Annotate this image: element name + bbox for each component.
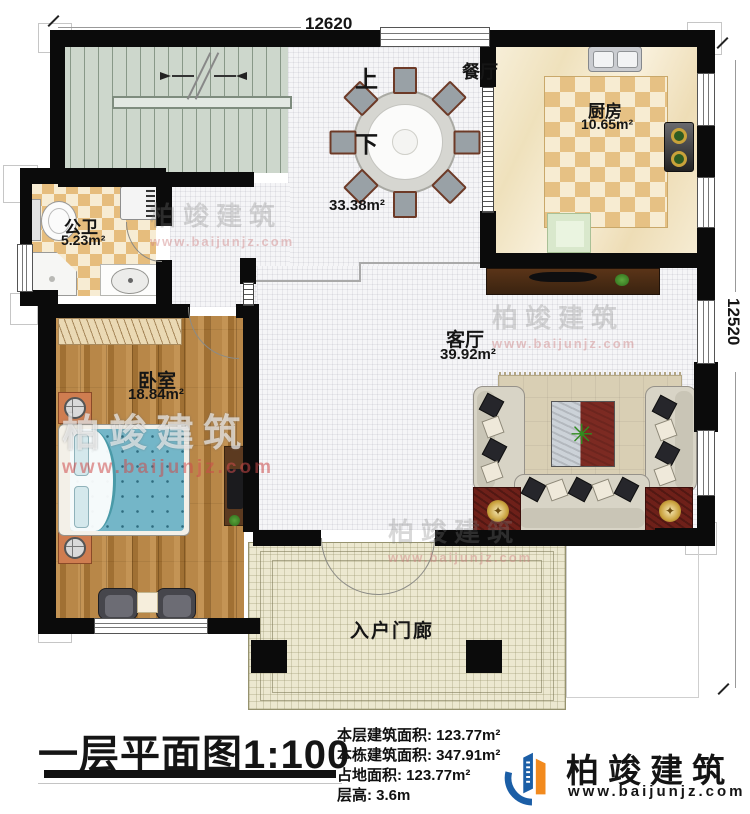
bedroom-chair xyxy=(98,588,138,620)
stair-arrow-line xyxy=(172,75,194,77)
room-area-bathroom: 5.23m² xyxy=(61,232,105,248)
kitchen-sink xyxy=(588,46,642,72)
title-underline-thin xyxy=(38,783,342,784)
kitchen-stove xyxy=(664,122,694,172)
doorway-threshold xyxy=(243,282,254,306)
dining-chair xyxy=(330,131,357,155)
beam-line xyxy=(359,262,361,282)
wall-segment xyxy=(480,253,698,268)
wall-segment xyxy=(253,530,321,546)
wall-segment xyxy=(697,30,715,75)
room-area-kitchen: 10.65m² xyxy=(581,116,633,132)
wall-segment xyxy=(694,362,718,432)
coffee-table: ✳ xyxy=(551,401,615,467)
dining-chair xyxy=(454,131,481,155)
window xyxy=(17,244,33,292)
window xyxy=(94,618,208,634)
dining-chair xyxy=(393,67,417,94)
info-floor-area: 本层建筑面积: 123.77m² xyxy=(337,726,500,746)
bathroom-counter xyxy=(100,264,158,296)
dimension-line-right xyxy=(735,372,736,688)
wall-segment xyxy=(38,304,190,318)
kitchen-sliding-door xyxy=(482,87,494,213)
stairs-down-label: 下 xyxy=(355,125,378,159)
terrace-outline xyxy=(566,545,699,698)
wall-segment xyxy=(156,260,172,306)
medallion-icon: ✦ xyxy=(665,504,675,518)
beam-line xyxy=(256,280,361,282)
build-info: 本层建筑面积: 123.77m² 本栋建筑面积: 347.91m² 占地面积: … xyxy=(337,726,500,806)
window xyxy=(697,300,715,364)
dimension-tick xyxy=(717,683,729,695)
brand-logo-icon xyxy=(502,746,560,806)
stair-arrow-icon xyxy=(236,72,247,80)
tv-cabinet xyxy=(486,268,660,295)
info-building-area: 本栋建筑面积: 347.91m² xyxy=(337,746,500,766)
dimension-right: 12520 xyxy=(723,298,743,345)
room-label-dining: 餐厅 xyxy=(462,58,498,84)
window xyxy=(380,27,490,47)
porch-column xyxy=(251,640,287,673)
wall-segment xyxy=(50,30,65,177)
stair-arrow-icon xyxy=(160,72,171,80)
kitchen-cabinet xyxy=(547,213,591,253)
wall-segment xyxy=(697,226,715,302)
plant-icon: ✳ xyxy=(570,418,593,451)
wardrobe xyxy=(58,318,182,345)
dimension-top: 12620 xyxy=(305,14,352,34)
info-floor-height: 层高: 3.6m xyxy=(337,786,500,806)
watermark: 柏竣建筑www.baijunjz.com xyxy=(492,298,636,351)
bedroom-chair xyxy=(156,588,196,620)
side-table: ✦ xyxy=(645,487,693,533)
window xyxy=(697,177,715,228)
stair-arrow-line xyxy=(214,75,236,77)
wall-segment xyxy=(697,494,715,546)
wall-segment xyxy=(488,30,700,47)
bedroom-side-table xyxy=(137,592,158,613)
bed-pillow xyxy=(74,486,89,528)
wall-segment xyxy=(20,168,166,184)
info-land-area: 占地面积: 123.77m² xyxy=(337,766,500,786)
brand-logo: 柏竣建筑 www.baijunjz.com xyxy=(502,746,732,808)
watermark: 柏竣建筑www.baijunjz.com xyxy=(150,196,294,249)
window xyxy=(697,430,715,496)
wall-pillar xyxy=(240,258,256,284)
dimension-line-right xyxy=(735,60,736,292)
porch-column xyxy=(466,640,502,673)
window xyxy=(697,73,715,126)
stairs-up-label: 上 xyxy=(355,60,378,94)
wall-segment xyxy=(38,304,56,634)
nightstand xyxy=(58,532,92,564)
brand-url: www.baijunjz.com xyxy=(568,783,745,800)
floor-plan-page: ✳ ✦ ✦ xyxy=(0,0,750,814)
watermark: 柏竣建筑www.baijunjz.com xyxy=(388,512,532,565)
staircase-floor xyxy=(56,45,290,173)
room-label-porch: 入户门廊 xyxy=(350,616,434,643)
wall-segment xyxy=(697,124,715,179)
wall-segment xyxy=(480,211,496,257)
room-area-bedroom: 18.84m² xyxy=(128,386,184,403)
room-area-dining: 33.38m² xyxy=(329,197,385,214)
dining-chair xyxy=(393,191,417,218)
title-underline xyxy=(44,770,336,778)
beam-line xyxy=(359,262,481,264)
watermark: 柏竣建筑www.baijunjz.com xyxy=(62,402,274,479)
room-area-living: 39.92m² xyxy=(440,346,496,363)
dimension-line-top xyxy=(58,27,301,28)
dining-table-center xyxy=(392,129,418,155)
stair-railing xyxy=(112,96,292,109)
